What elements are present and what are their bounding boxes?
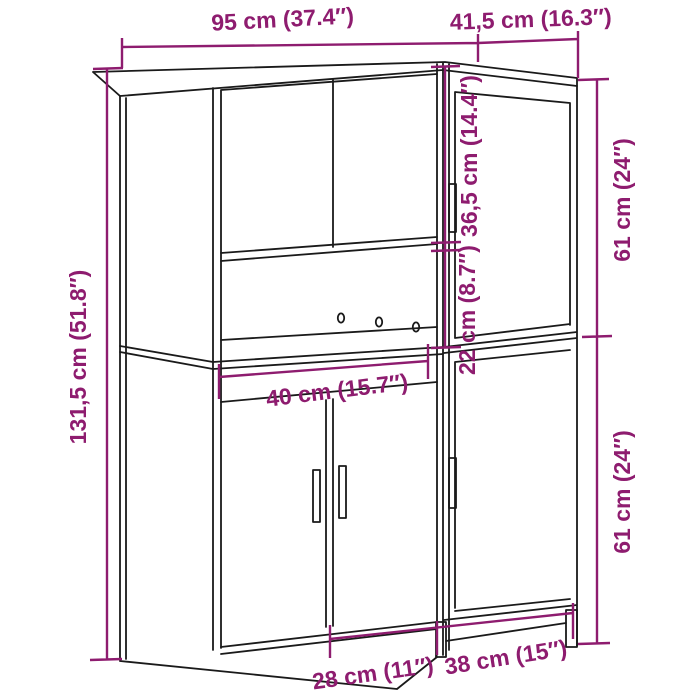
handle-icon	[313, 470, 320, 522]
dim-label-left-door-width: 28 cm (11″)	[311, 652, 436, 695]
compartment-bottom-edge	[221, 327, 437, 340]
dim-line-depth	[478, 31, 578, 78]
dim-label-right-upper-height: 61 cm (24″)	[609, 138, 635, 262]
dim-label-depth: 41,5 cm (16.3″)	[449, 3, 612, 35]
dim-label-total-width: 95 cm (37.4″)	[211, 2, 355, 35]
unit-joint-divider	[437, 63, 449, 655]
dim-label-compartment-width: 40 cm (15.7″)	[265, 368, 410, 411]
dim-label-right-lower-height: 61 cm (24″)	[609, 430, 635, 554]
diagram-canvas: 95 cm (37.4″) 41,5 cm (16.3″) 131,5 cm (…	[0, 0, 700, 700]
cabinet-drawing	[93, 62, 577, 689]
dimension-annotations: 95 cm (37.4″) 41,5 cm (16.3″) 131,5 cm (…	[65, 2, 635, 694]
dim-label-total-height: 131,5 cm (51.8″)	[65, 270, 91, 445]
pin-hole-icon	[376, 317, 382, 326]
lower-left-doors	[221, 382, 437, 627]
handle-icon	[339, 466, 346, 518]
pin-hole-icon	[413, 322, 419, 331]
dim-label-right-door-width: 38 cm (15″)	[443, 635, 569, 680]
dim-label-upper-compartment-height: 36,5 cm (14.4″)	[456, 75, 482, 237]
left-side-panel	[120, 96, 126, 660]
pin-hole-icon	[338, 313, 344, 322]
dim-line-right-heights	[578, 79, 612, 644]
dim-label-lower-gap-height: 22 cm (8.7″)	[454, 245, 480, 375]
cabinet-dimension-diagram: 95 cm (37.4″) 41,5 cm (16.3″) 131,5 cm (…	[0, 0, 700, 700]
dim-line-total-height	[90, 68, 123, 660]
middle-shelf	[221, 237, 437, 261]
door-handles	[313, 184, 456, 522]
cabinet-top-edges	[93, 62, 577, 96]
counter-band	[120, 346, 443, 369]
plinth-foot	[566, 610, 577, 647]
